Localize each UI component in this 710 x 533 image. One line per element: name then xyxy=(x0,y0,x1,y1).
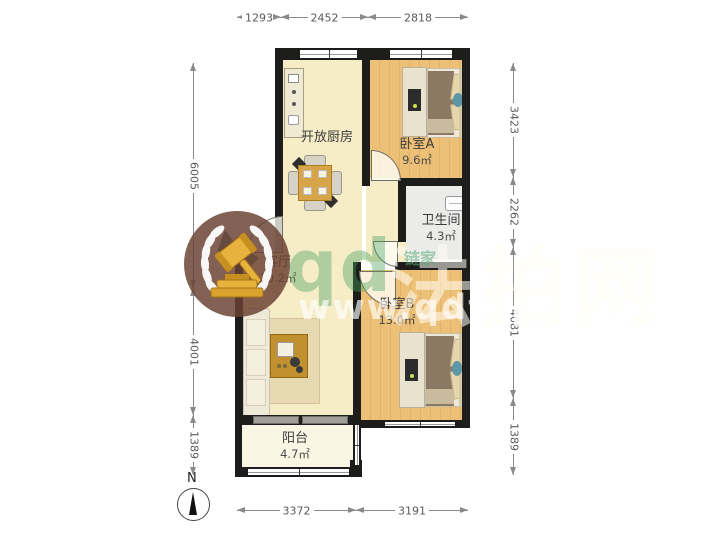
dim-left-3: 1389 xyxy=(193,415,194,475)
room-area: 4.3㎡ xyxy=(406,229,476,243)
wall-bedrooma-bottom xyxy=(398,178,462,186)
dim-label: 2818 xyxy=(401,12,435,25)
dining-table xyxy=(298,165,332,201)
dim-label: 3423 xyxy=(508,103,521,137)
sofa-cushion xyxy=(246,319,266,346)
burner-dot xyxy=(292,90,296,94)
room-name: 卧室A xyxy=(382,137,452,153)
plate xyxy=(303,170,312,178)
room-label-bedroom-a: 卧室A 9.6㎡ xyxy=(382,137,452,168)
gavel-logo-svg xyxy=(181,208,293,320)
wall-bathroom-left xyxy=(398,186,406,242)
kitchen-counter xyxy=(284,68,304,138)
compass-needle xyxy=(189,492,197,515)
bedroom-a-window xyxy=(390,48,452,60)
cup-dot xyxy=(283,364,287,368)
bedside-lamp xyxy=(452,361,462,376)
plate xyxy=(318,187,327,195)
dim-label: 2262 xyxy=(508,195,521,229)
dining-chair xyxy=(331,171,342,195)
wall-bedroomb-top xyxy=(395,262,462,270)
dim-label: 2452 xyxy=(308,12,342,25)
room-area: 4.7㎡ xyxy=(260,447,330,461)
kettle-icon xyxy=(296,366,303,373)
dim-top-2: 2452 xyxy=(281,17,368,18)
room-label-bedroom-b: 卧室B 13.0㎡ xyxy=(362,297,432,328)
balcony-side-window xyxy=(353,425,361,465)
sink-icon xyxy=(288,115,299,125)
dim-label: 3372 xyxy=(280,505,314,518)
wall-balcony-left xyxy=(235,425,242,470)
dining-chair xyxy=(304,200,326,211)
blanket-fold xyxy=(426,389,454,404)
dim-right-2: 2262 xyxy=(513,177,514,247)
dim-label: 4001 xyxy=(188,335,201,369)
wall-living-bedroomb xyxy=(353,270,361,420)
bed xyxy=(427,68,462,138)
room-area: 9.6㎡ xyxy=(382,153,452,167)
dim-label: 1293 xyxy=(242,12,276,25)
wall-stub xyxy=(362,178,370,186)
sofa-cushion xyxy=(246,379,266,406)
stove-icon xyxy=(288,74,299,83)
bathroom-door-arc xyxy=(373,241,398,267)
wall-right xyxy=(462,60,470,428)
compass-north-label: N xyxy=(187,471,197,486)
dim-right-4: 1389 xyxy=(513,398,514,475)
plate xyxy=(303,187,312,195)
room-label-kitchen: 开放厨房 xyxy=(292,130,362,146)
wall-kitchen-bedrooma xyxy=(362,60,370,178)
auction-gavel-logo xyxy=(181,208,293,320)
wardrobe xyxy=(399,332,425,408)
room-label-bathroom: 卫生间 4.3㎡ xyxy=(406,213,476,244)
coffee-table xyxy=(270,334,308,378)
floorplan-page: { "rooms": { "kitchen": {"name": "开放厨房",… xyxy=(0,0,710,533)
sliding-door-panel xyxy=(253,416,299,424)
dim-label: 4081 xyxy=(508,306,521,340)
indicator-dot xyxy=(410,374,414,378)
sofa xyxy=(243,308,270,416)
kitchen-window xyxy=(300,48,357,60)
dim-top-1: 1293 xyxy=(237,17,281,18)
balcony-window xyxy=(248,467,349,477)
dim-label: 1389 xyxy=(508,420,521,454)
dim-bottom-1: 3372 xyxy=(237,510,356,511)
room-name: 卫生间 xyxy=(406,213,476,229)
dim-label: 3191 xyxy=(395,505,429,518)
burner-dot xyxy=(292,102,296,106)
plate xyxy=(318,170,327,178)
room-label-balcony: 阳台 4.7㎡ xyxy=(260,431,330,462)
room-name: 阳台 xyxy=(260,431,330,447)
blanket-fold xyxy=(428,119,454,133)
room-name: 开放厨房 xyxy=(292,130,362,146)
wardrobe xyxy=(402,67,427,137)
room-name: 卧室B xyxy=(362,297,432,313)
wall-bedroomb-top-left xyxy=(353,262,361,270)
dim-label: 1389 xyxy=(188,428,201,462)
room-area: 13.0㎡ xyxy=(362,313,432,327)
indicator-dot xyxy=(413,104,417,108)
cup-dot xyxy=(277,364,281,368)
dim-bottom-2: 3191 xyxy=(356,510,468,511)
bedroom-b-window xyxy=(385,420,455,428)
dim-label: 6005 xyxy=(188,159,201,193)
dim-right-1: 3423 xyxy=(513,63,514,177)
sliding-door-panel xyxy=(302,416,348,424)
tray-icon xyxy=(277,342,294,357)
dim-right-3: 4081 xyxy=(513,247,514,398)
bed xyxy=(425,333,462,407)
dim-top-3: 2818 xyxy=(368,17,468,18)
sofa-cushion xyxy=(246,349,266,376)
